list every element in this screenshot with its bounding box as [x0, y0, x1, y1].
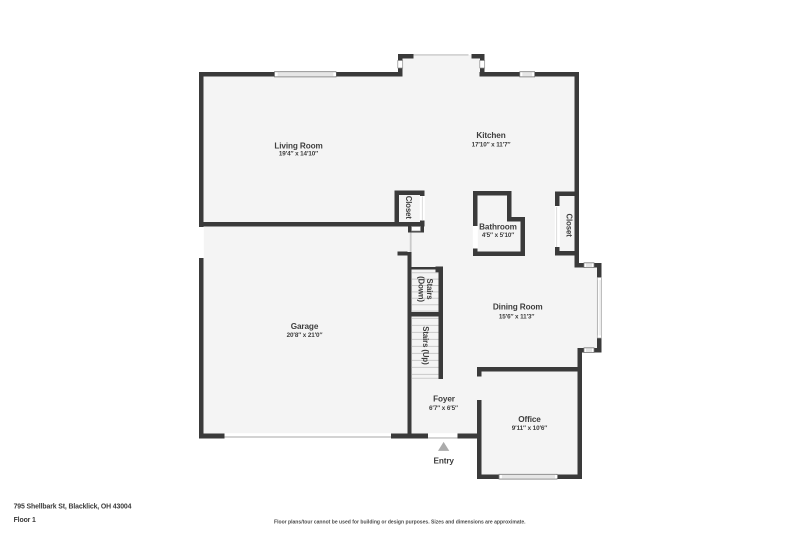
svg-text:Office: Office [518, 415, 541, 424]
svg-text:19′4″ x 14′10″: 19′4″ x 14′10″ [279, 151, 318, 158]
svg-text:Closet: Closet [564, 213, 573, 237]
svg-text:Stairs (Up): Stairs (Up) [421, 326, 430, 365]
svg-text:Kitchen: Kitchen [476, 131, 505, 140]
svg-text:15′6″ x 11′3″: 15′6″ x 11′3″ [499, 314, 535, 321]
svg-text:9′11″ x 10′6″: 9′11″ x 10′6″ [512, 425, 548, 432]
svg-text:795 Shellbark St, Blacklick, O: 795 Shellbark St, Blacklick, OH 43004 [14, 504, 132, 511]
svg-text:Garage: Garage [291, 322, 319, 331]
svg-text:Entry: Entry [434, 457, 455, 466]
svg-text:20′8″ x 21′0″: 20′8″ x 21′0″ [287, 332, 323, 339]
svg-text:Dining Room: Dining Room [493, 303, 543, 312]
svg-text:6′7″ x 6′5″: 6′7″ x 6′5″ [429, 405, 458, 412]
svg-text:Foyer: Foyer [433, 394, 456, 403]
svg-text:Living Room: Living Room [274, 141, 322, 150]
svg-text:(Down): (Down) [417, 276, 426, 302]
svg-text:Floor 1: Floor 1 [14, 517, 36, 524]
svg-text:Floor plans/tour cannot be use: Floor plans/tour cannot be used for buil… [274, 520, 526, 526]
svg-text:4′5″ x 5′10″: 4′5″ x 5′10″ [482, 232, 514, 239]
svg-text:Bathroom: Bathroom [479, 222, 517, 231]
svg-text:Closet: Closet [404, 196, 413, 220]
svg-text:17′10″ x 11′7″: 17′10″ x 11′7″ [472, 141, 511, 148]
